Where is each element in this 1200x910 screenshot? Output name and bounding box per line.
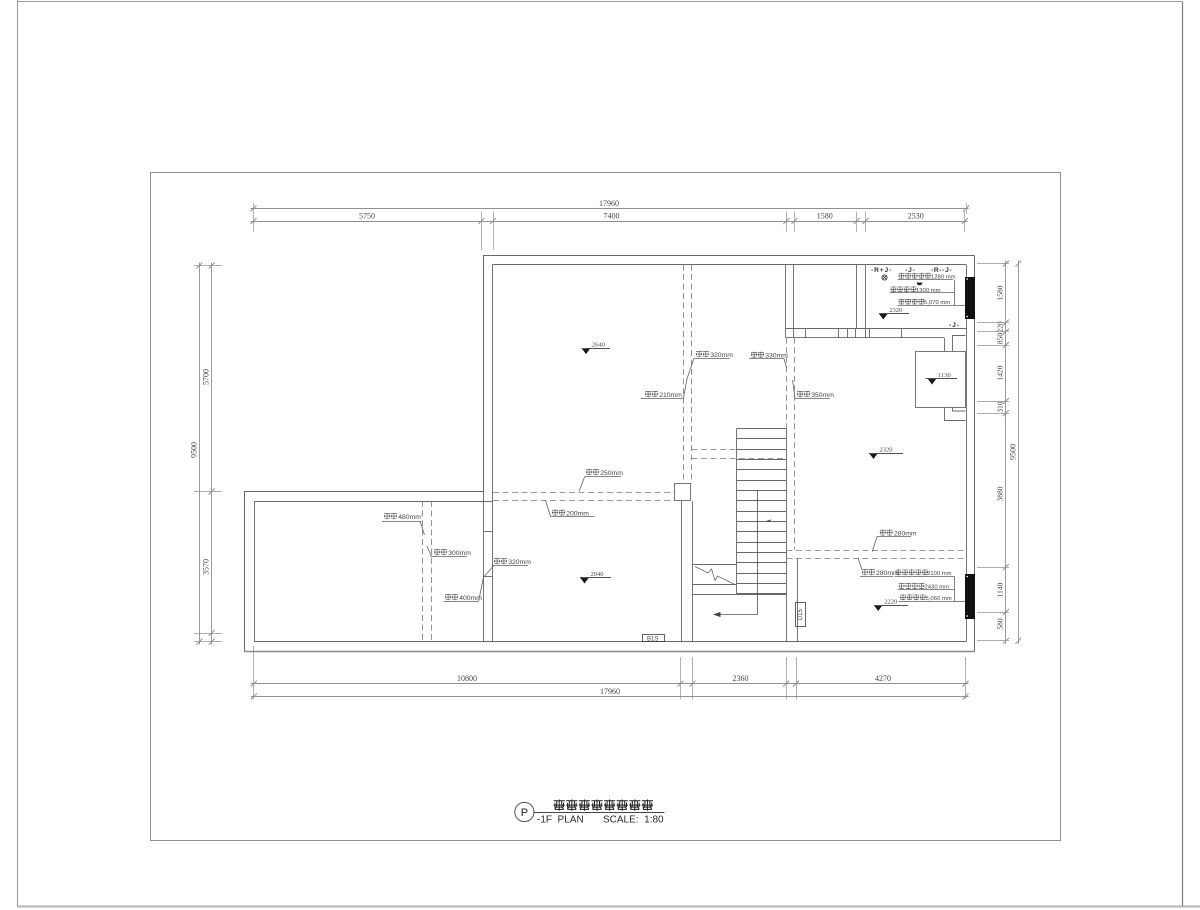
svg-text:1140: 1140 — [995, 582, 1004, 597]
svg-text:2320: 2320 — [889, 307, 902, 314]
svg-text:5,060 mm: 5,060 mm — [926, 596, 952, 602]
svg-text:9500: 9500 — [1008, 444, 1017, 460]
svg-text:210mm: 210mm — [659, 392, 682, 399]
svg-text:7400: 7400 — [604, 211, 620, 220]
svg-text:280mm: 280mm — [876, 570, 899, 577]
svg-text:850: 850 — [995, 333, 1004, 345]
svg-text:-1F PLAN: -1F PLAN — [537, 815, 584, 826]
svg-text:480mm: 480mm — [398, 514, 421, 521]
svg-text:2040: 2040 — [591, 571, 604, 578]
svg-text:2360: 2360 — [733, 674, 749, 683]
svg-text:-J-: -J- — [905, 267, 916, 274]
svg-text:250mm: 250mm — [600, 470, 623, 477]
svg-text:-J-: -J- — [949, 322, 960, 329]
svg-text:2220: 2220 — [884, 599, 897, 606]
svg-text:5700: 5700 — [202, 369, 211, 385]
svg-text:-R--J-: -R--J- — [931, 267, 952, 274]
svg-text:17960: 17960 — [599, 199, 619, 208]
svg-text:2530: 2530 — [908, 211, 924, 220]
svg-text:3570: 3570 — [202, 559, 211, 575]
svg-text:300mm: 300mm — [448, 550, 471, 557]
svg-text:5750: 5750 — [359, 211, 375, 220]
svg-text:10800: 10800 — [457, 674, 477, 683]
svg-text:D15: D15 — [798, 609, 804, 621]
svg-text:320mm: 320mm — [508, 559, 531, 566]
svg-text:3880: 3880 — [995, 486, 1004, 501]
svg-text:9500: 9500 — [189, 442, 198, 458]
svg-text:B1S: B1S — [647, 637, 658, 643]
svg-text:350mm: 350mm — [811, 392, 834, 399]
svg-text:-R+J-: -R+J- — [871, 267, 892, 274]
svg-text:17960: 17960 — [600, 687, 620, 696]
svg-text:1580: 1580 — [995, 285, 1004, 300]
svg-text:580: 580 — [995, 618, 1004, 630]
svg-text:320mm: 320mm — [710, 352, 733, 359]
svg-text:2320: 2320 — [880, 447, 893, 454]
svg-text:310: 310 — [995, 401, 1004, 413]
svg-text:4270: 4270 — [875, 674, 891, 683]
svg-text:SCALE: 1:80: SCALE: 1:80 — [603, 815, 664, 826]
svg-text:1420: 1420 — [995, 365, 1004, 380]
svg-text:1580: 1580 — [817, 211, 833, 220]
svg-text:1130: 1130 — [938, 372, 951, 379]
svg-text:2100 mm: 2100 mm — [927, 571, 952, 577]
svg-text:P: P — [521, 807, 528, 819]
svg-text:2640: 2640 — [592, 342, 605, 349]
